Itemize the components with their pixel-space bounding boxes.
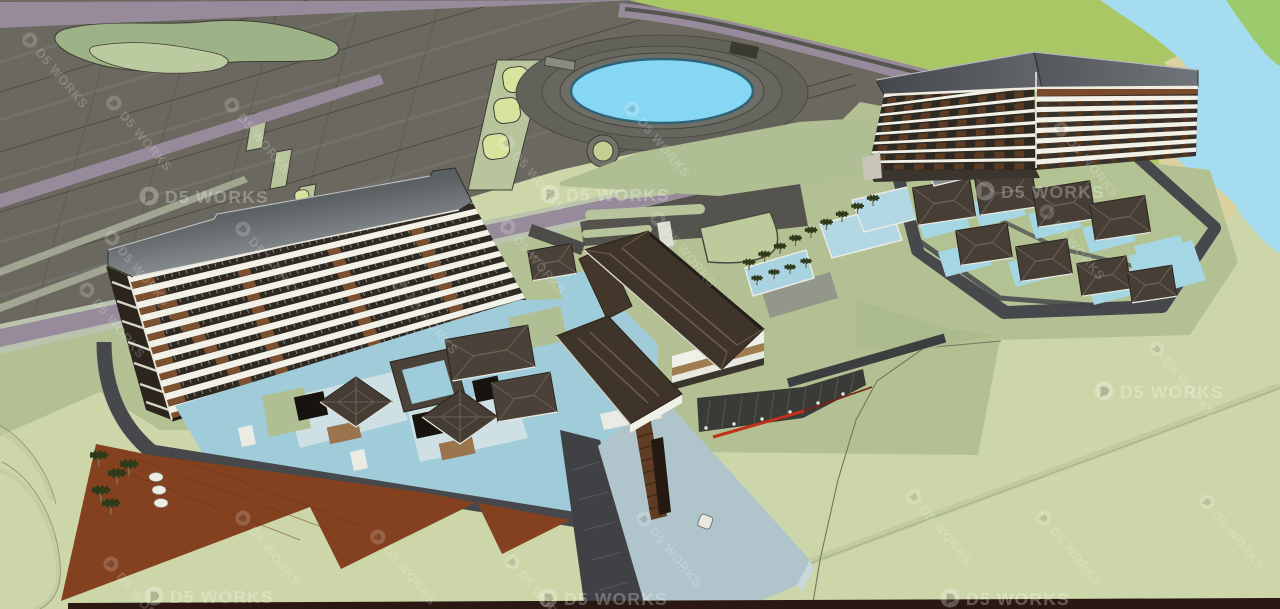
svg-text:D5 WORKS: D5 WORKS [1001, 182, 1105, 202]
svg-text:D5 WORKS: D5 WORKS [966, 589, 1070, 609]
svg-text:D5 WORKS: D5 WORKS [170, 587, 274, 607]
svg-text:D5 WORKS: D5 WORKS [165, 187, 269, 207]
svg-text:D5 WORKS: D5 WORKS [566, 185, 670, 205]
svg-text:D5 WORKS: D5 WORKS [564, 589, 668, 609]
